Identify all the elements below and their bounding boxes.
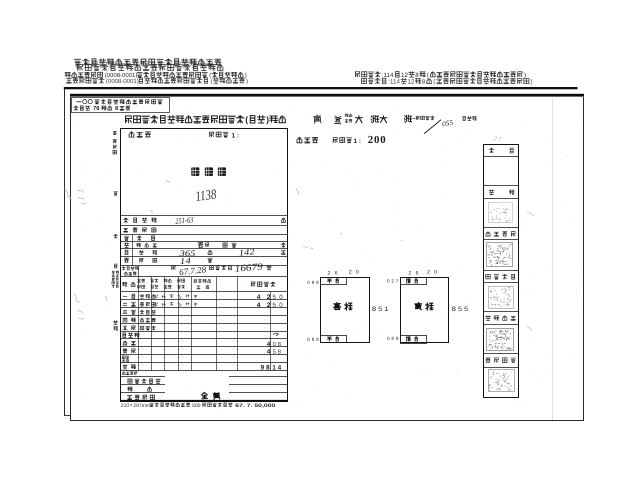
- svg-text:210: 210: [121, 403, 130, 409]
- svg-text:8: 8: [415, 72, 419, 79]
- svg-text:1 :: 1 :: [354, 138, 361, 145]
- svg-text:1 :: 1 :: [232, 132, 239, 139]
- svg-text:0 8: 0 8: [273, 341, 282, 348]
- svg-text:2 0: 2 0: [349, 270, 360, 276]
- svg-text:297mm: 297mm: [133, 403, 150, 409]
- svg-text:0 8 8: 0 8 8: [387, 336, 399, 341]
- svg-text:×: ×: [130, 403, 133, 409]
- svg-text:9 8: 9 8: [261, 365, 270, 372]
- svg-text:): ): [524, 72, 526, 79]
- svg-text:): ): [266, 114, 269, 124]
- svg-text:8 5 1: 8 5 1: [372, 306, 389, 313]
- svg-text:1138: 1138: [195, 188, 218, 205]
- svg-text:67. 7. 50,000: 67. 7. 50,000: [235, 403, 275, 409]
- svg-text:142: 142: [238, 246, 256, 257]
- svg-text:2 6: 2 6: [328, 271, 339, 277]
- svg-text:2 6: 2 6: [409, 271, 420, 277]
- svg-text:200: 200: [368, 134, 387, 146]
- svg-text:8: 8: [422, 79, 426, 86]
- svg-text:0 8 8: 0 8 8: [307, 280, 319, 285]
- svg-text:5 8: 5 8: [273, 349, 282, 356]
- svg-text:500: 500: [192, 403, 201, 409]
- svg-text:8 5 5: 8 5 5: [452, 306, 469, 313]
- svg-text:(0008-0001): (0008-0001): [106, 78, 139, 85]
- svg-text:4 2: 4 2: [257, 294, 273, 301]
- svg-text:5 0: 5 0: [273, 294, 284, 301]
- svg-text:2 0: 2 0: [427, 270, 438, 276]
- svg-text:1 4: 1 4: [272, 365, 281, 372]
- svg-text:): ): [531, 79, 533, 86]
- svg-text:0 8 8: 0 8 8: [307, 337, 319, 342]
- svg-text:5 0: 5 0: [273, 302, 284, 309]
- svg-text:12: 12: [408, 79, 415, 86]
- svg-text:4 2: 4 2: [257, 302, 273, 309]
- svg-text:4: 4: [267, 349, 271, 356]
- svg-text:4: 4: [267, 341, 271, 348]
- svg-text:(: (: [245, 114, 248, 124]
- svg-text:(: (: [211, 78, 213, 85]
- svg-text:14: 14: [179, 255, 192, 266]
- svg-text:): ): [246, 78, 248, 85]
- svg-text:0 2 7: 0 2 7: [387, 279, 399, 284]
- svg-text:251-63: 251-63: [175, 215, 194, 225]
- svg-text:76: 76: [93, 105, 100, 112]
- svg-text::114: :114: [388, 79, 400, 86]
